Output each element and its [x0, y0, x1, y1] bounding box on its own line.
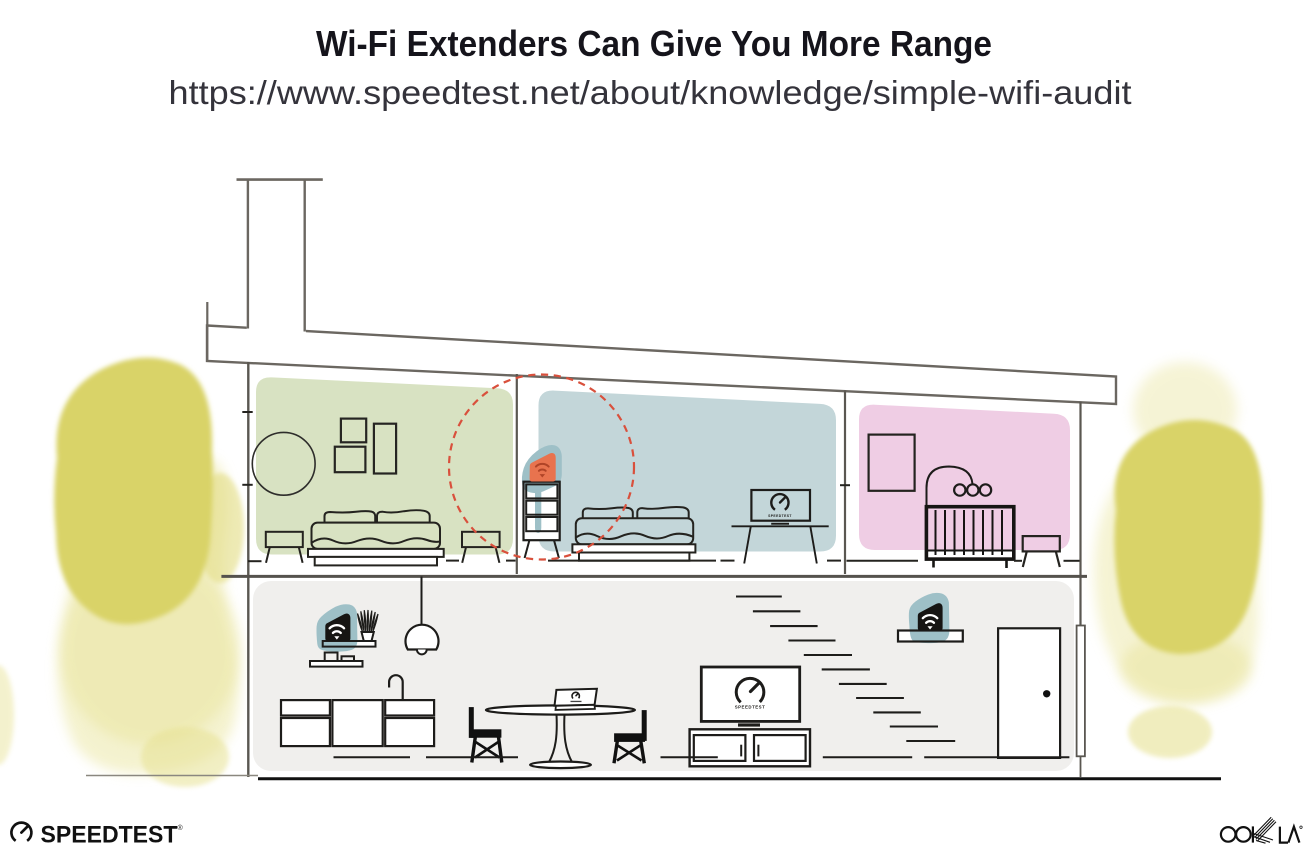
- svg-text:https://www.speedtest.net/abou: https://www.speedtest.net/about/knowledg…: [169, 74, 1132, 111]
- svg-text:®: ®: [178, 824, 184, 832]
- svg-text:SPEEDTEST: SPEEDTEST: [41, 822, 178, 849]
- svg-text:SPEEDTEST: SPEEDTEST: [735, 705, 766, 710]
- svg-text:Wi-Fi Extenders Can Give You M: Wi-Fi Extenders Can Give You More Range: [316, 23, 992, 64]
- svg-text:SPEEDTEST: SPEEDTEST: [768, 514, 792, 518]
